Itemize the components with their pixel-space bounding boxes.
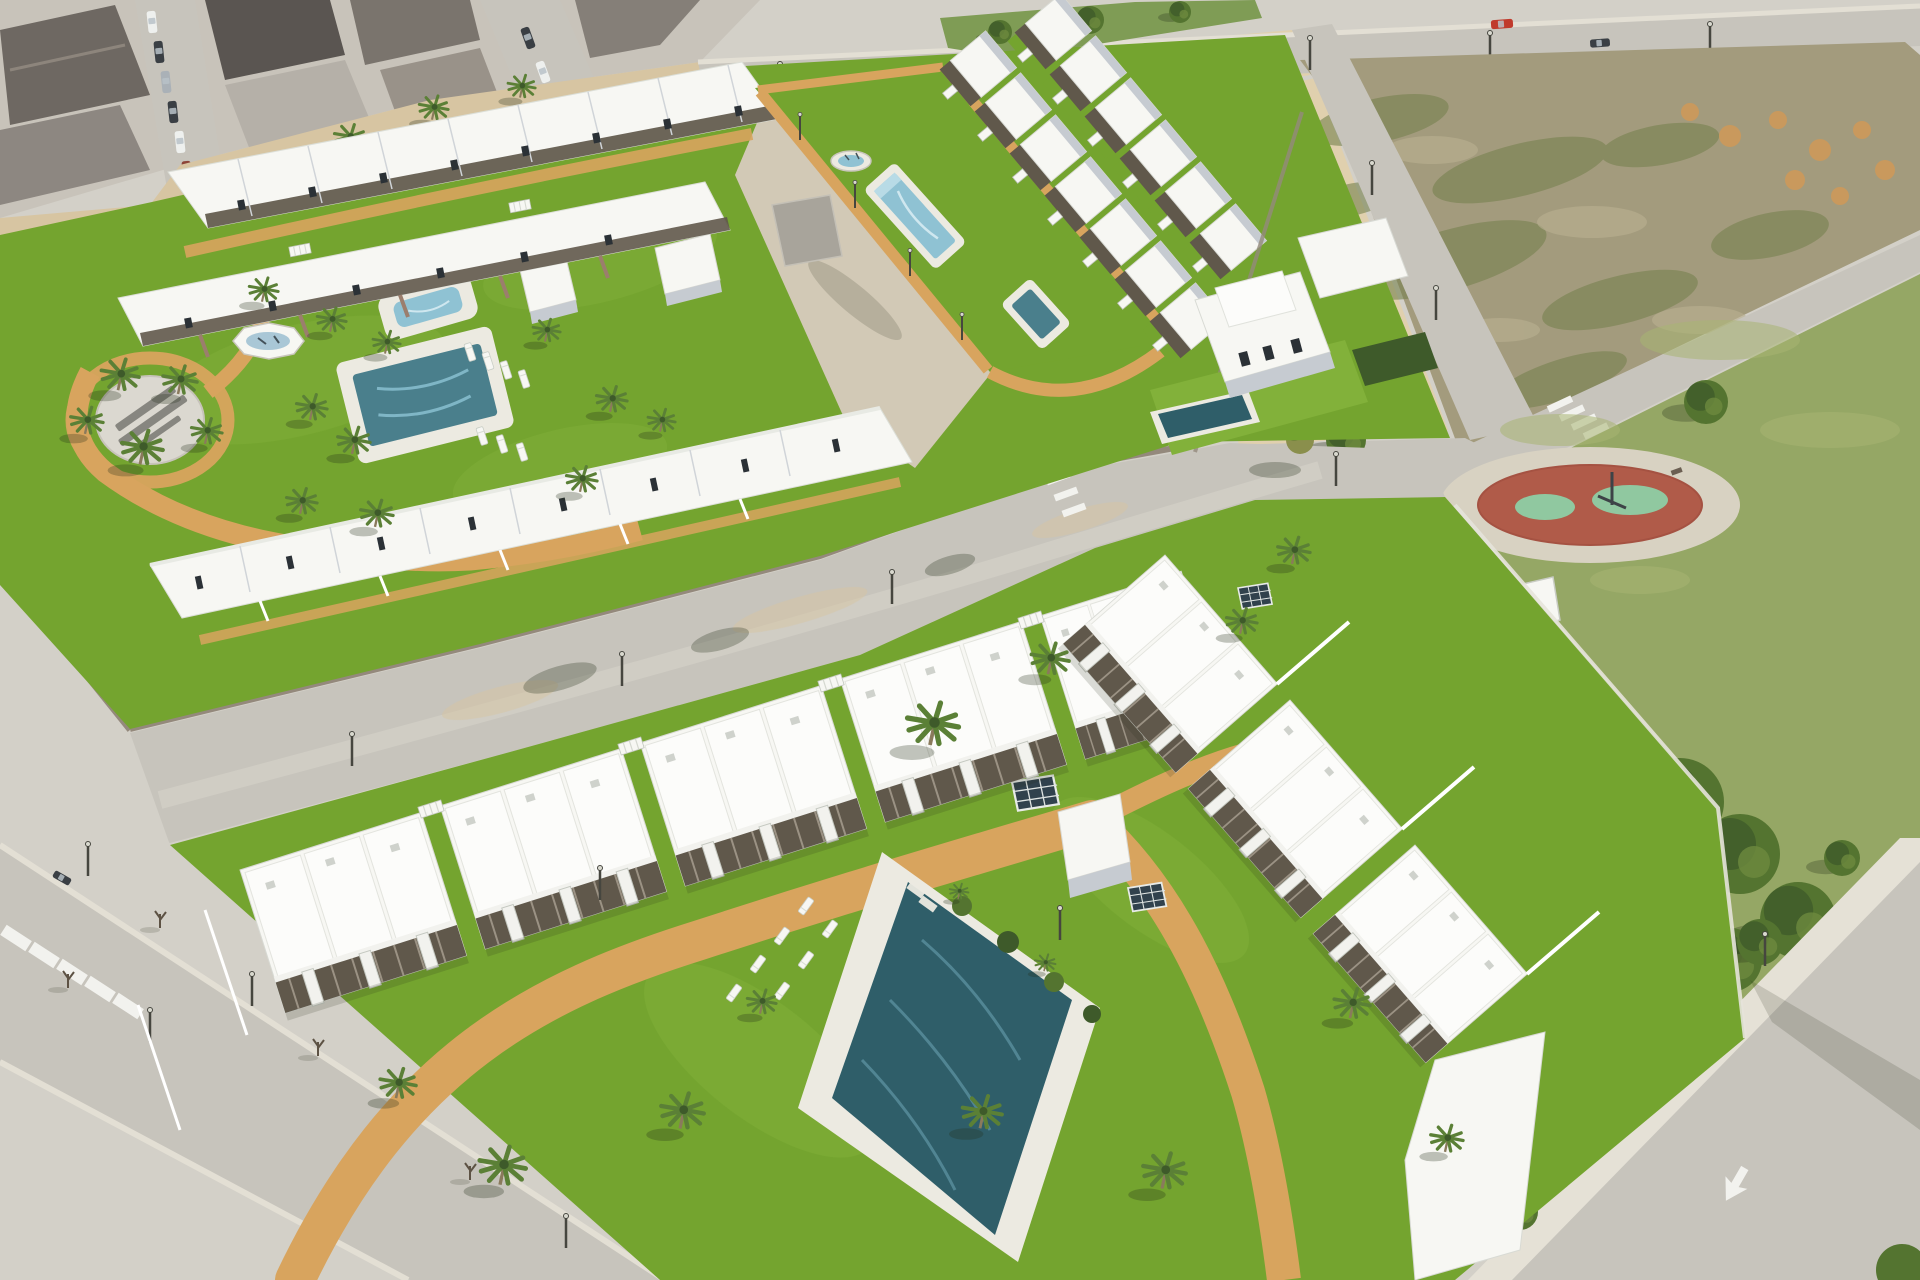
pool-pavilion-cube xyxy=(1058,794,1132,898)
round-fountain xyxy=(831,151,871,171)
aerial-render: Aerial 3D render of a new-build white re… xyxy=(0,0,1920,1280)
octagon-fountain xyxy=(233,323,304,359)
car xyxy=(1590,38,1610,47)
aerial-render-stage: Aerial 3D render of a new-build white re… xyxy=(0,0,1920,1280)
site-shed xyxy=(772,195,842,266)
red-car xyxy=(1491,19,1514,30)
